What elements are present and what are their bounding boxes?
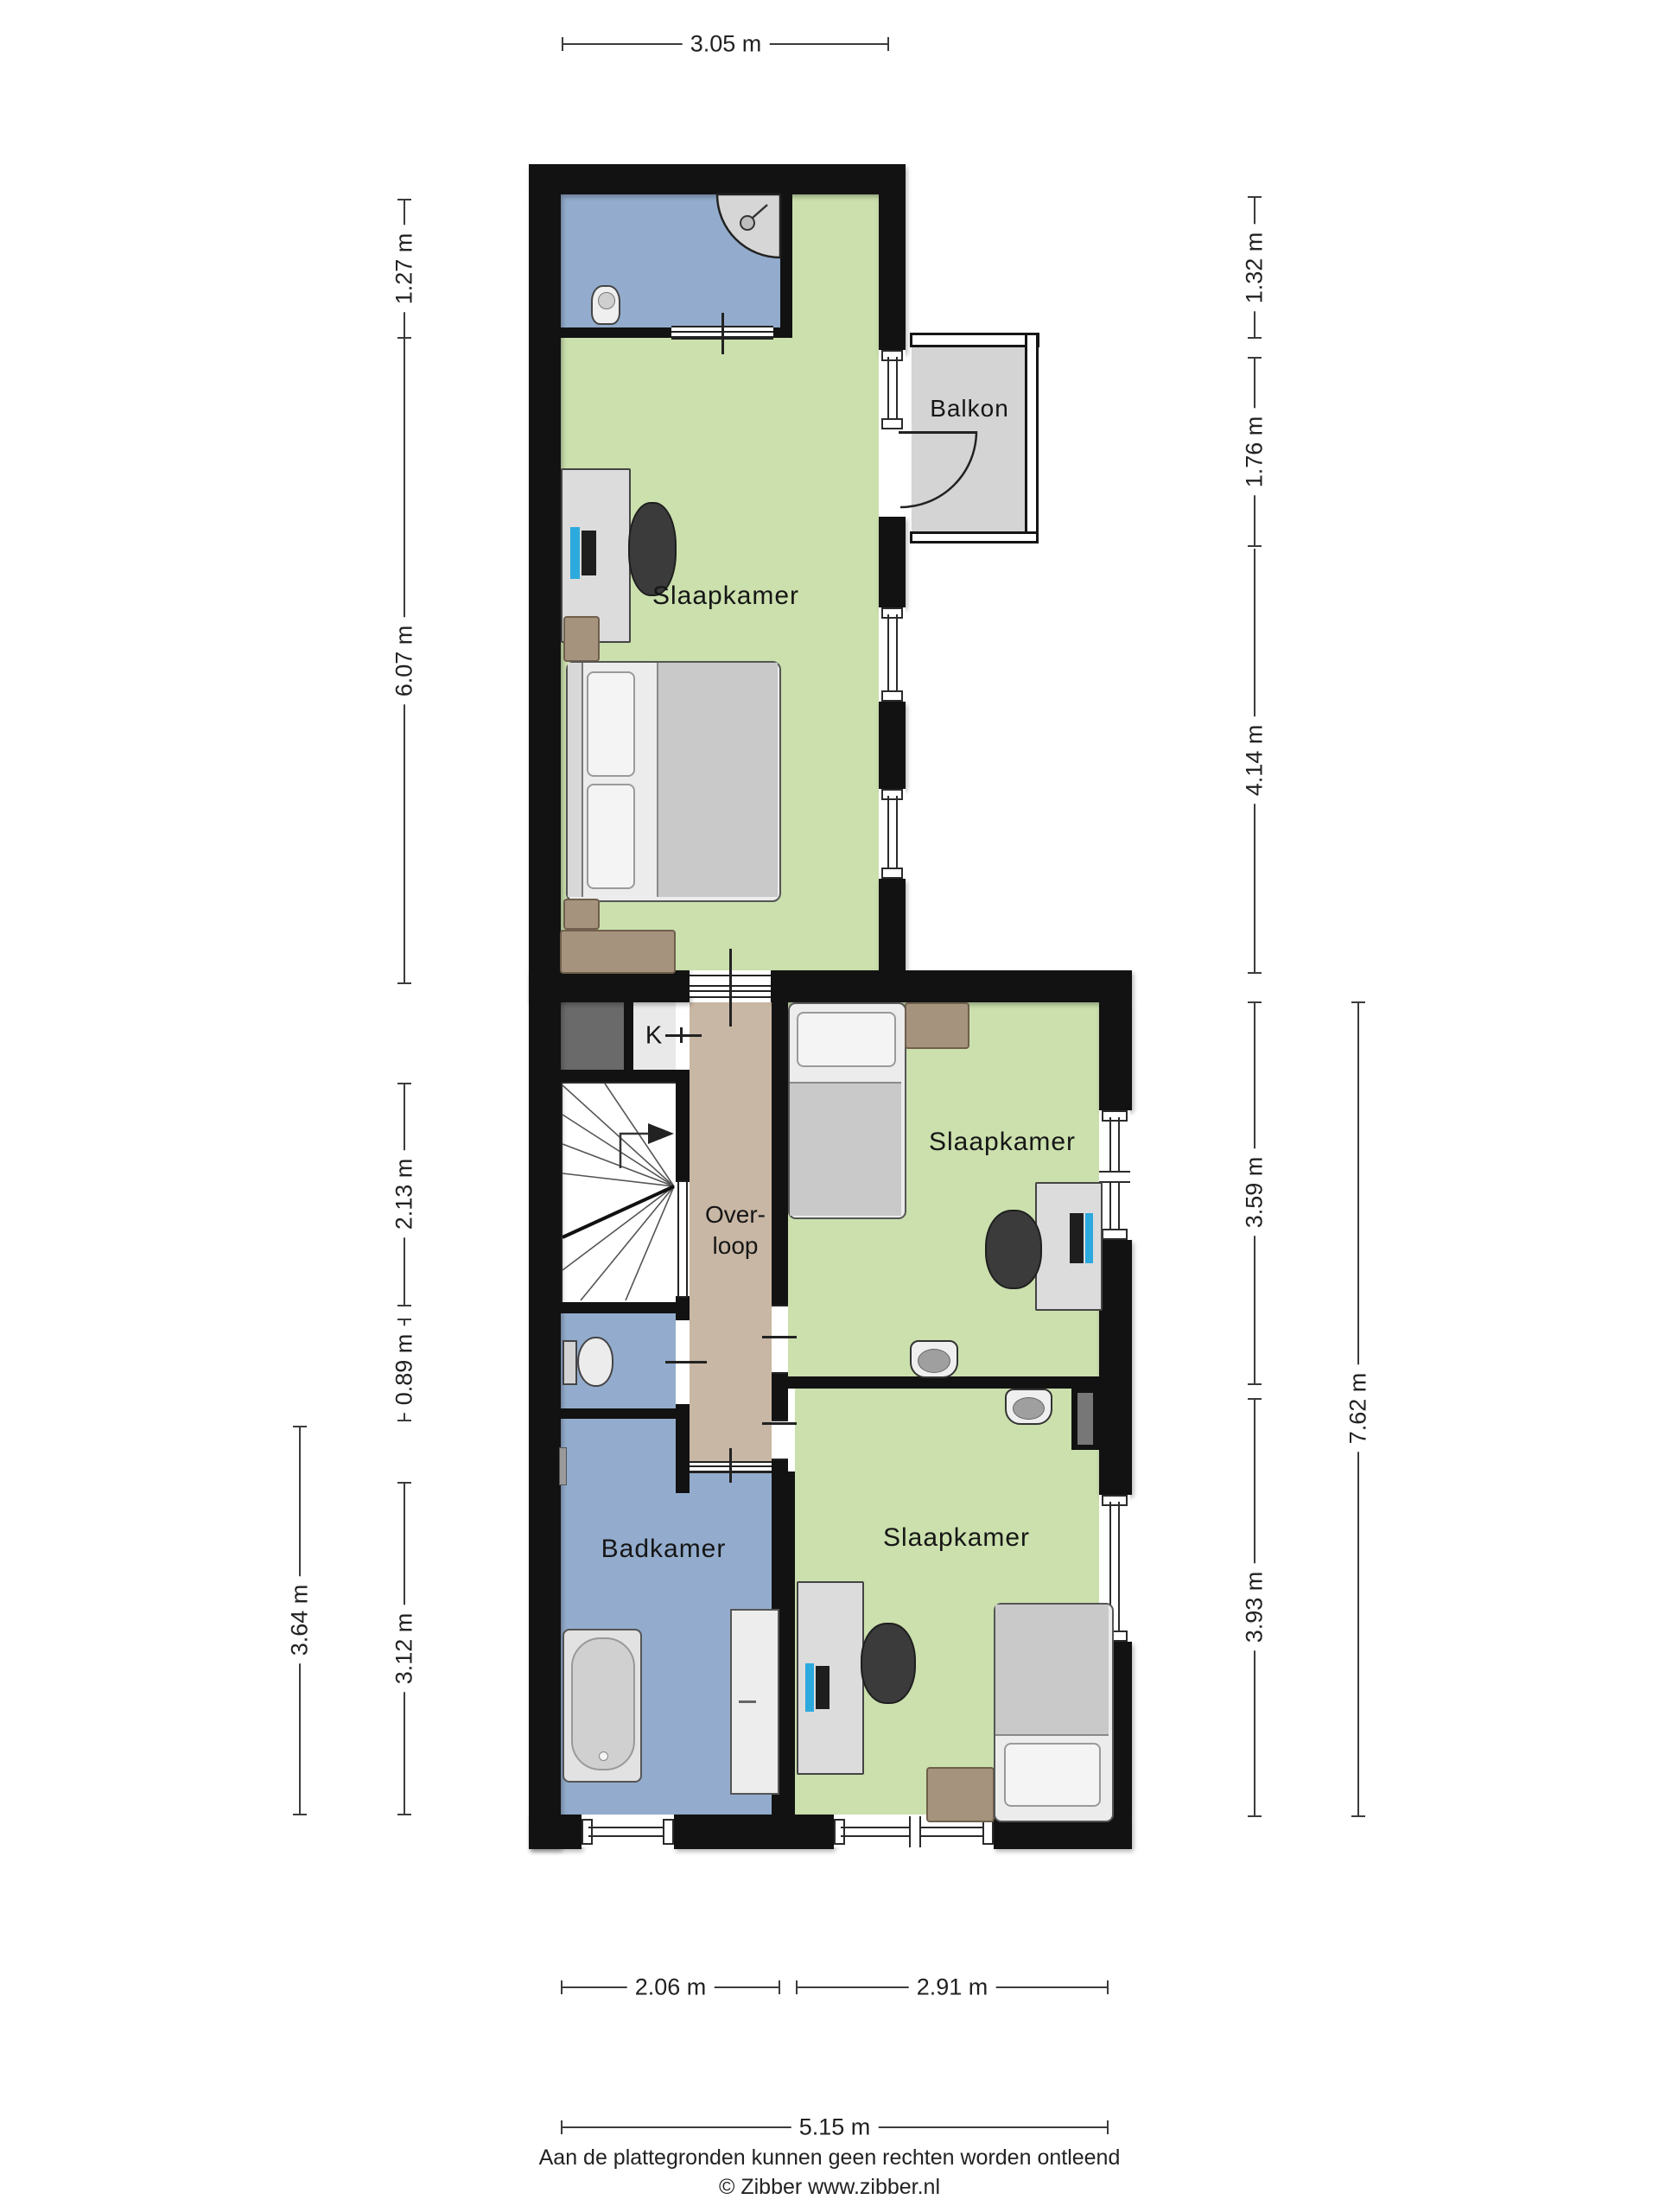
wall-segment [879, 702, 906, 789]
dim-label-right-bedroom: 4.14 m [1240, 717, 1270, 804]
dim-label-left-toilet: 0.89 m [390, 1326, 420, 1414]
door-tick [721, 313, 724, 354]
room-label-closet: K [645, 1022, 663, 1051]
towel-rail [559, 1447, 567, 1485]
washbasin-middle [910, 1340, 958, 1378]
pillow [587, 671, 635, 777]
dim-label-bottom-bedroom: 2.91 m [909, 1973, 996, 2003]
dim-label-right-total: 7.62 m [1344, 1365, 1374, 1452]
single-bed-middle [788, 1002, 906, 1219]
dim-label-left-bedroom: 6.07 m [390, 618, 420, 705]
room-closet-dark [561, 1002, 624, 1070]
wall-segment [1099, 1240, 1132, 1495]
wall-segment [561, 1302, 676, 1313]
pillow [797, 1012, 896, 1067]
wall-segment [529, 194, 561, 1002]
room-bedroom-top-strip [792, 194, 879, 338]
room-label-landing-line2: loop [705, 1230, 766, 1262]
wall-segment [879, 517, 906, 607]
disclaimer-line1: Aan de plattegronden kunnen geen rechten… [0, 2143, 1659, 2172]
balcony-window [879, 350, 906, 429]
closet-hatch-tick [680, 1027, 683, 1043]
washbasin-bowl [918, 1349, 950, 1373]
door-tick [762, 1336, 797, 1338]
wall-segment [1099, 1002, 1132, 1110]
duct-inset [1077, 1393, 1093, 1445]
wall-segment [879, 879, 906, 970]
room-label-balcony: Balkon [930, 395, 1009, 423]
closet-hatch-line [665, 1034, 702, 1037]
balcony-railing-bottom [910, 531, 1039, 543]
room-label-bathroom: Badkamer [601, 1535, 727, 1564]
double-bed [566, 661, 781, 902]
room-label-bedroom-bottom: Slaapkamer [883, 1523, 1030, 1553]
wall-segment [772, 1374, 788, 1420]
monitor-accent [1085, 1213, 1093, 1263]
door-tick [729, 949, 732, 1027]
bed-blanket [657, 663, 778, 897]
dim-label-left-bathroom: 3.12 m [390, 1605, 420, 1693]
stair-door-leaf [677, 1180, 688, 1298]
pillow [587, 784, 635, 889]
room-stairs [561, 1082, 679, 1306]
window-seam [1099, 1171, 1130, 1183]
disclaimer-line2: © Zibber www.zibber.nl [0, 2172, 1659, 2202]
window-bedroom-top-2 [879, 789, 906, 879]
wall-segment [529, 970, 690, 1002]
wall-segment [561, 1070, 690, 1082]
monitor-screen [582, 531, 596, 575]
balcony-door-opening [879, 429, 906, 517]
door-tick [729, 1448, 732, 1483]
dresser [560, 930, 676, 974]
pillow [1004, 1743, 1101, 1807]
washbasin-bowl [598, 292, 615, 309]
window-bedroom-middle [1099, 1110, 1130, 1240]
toilet-tank [563, 1340, 577, 1385]
wall-segment [529, 1002, 561, 1849]
monitor-screen [816, 1666, 829, 1709]
dim-label-right-bedroom-bottom: 3.93 m [1240, 1564, 1270, 1651]
window-bathroom-bottom [582, 1816, 674, 1847]
washbasin-bottom [1005, 1389, 1052, 1425]
window-seam [909, 1816, 921, 1847]
dim-label-right-bedroom-middle: 3.59 m [1240, 1149, 1270, 1236]
floor-plan-page: 3.05 m 1.27 m 6.07 m 2.13 m 0.89 m 3.12 … [0, 0, 1659, 2212]
bed-headboard [568, 663, 583, 897]
office-chair [861, 1623, 916, 1704]
door-bedroom-bottom [772, 1420, 788, 1460]
office-chair [985, 1210, 1042, 1289]
cabinet-handle [739, 1700, 756, 1703]
monitor-accent [805, 1663, 814, 1712]
wall-segment [788, 1376, 1099, 1389]
dim-label-top-total: 3.05 m [683, 29, 770, 60]
bed-blanket [995, 1605, 1109, 1736]
dim-label-bottom-bathroom: 2.06 m [627, 1973, 715, 2003]
wall-segment [561, 1408, 690, 1419]
door-tick [762, 1422, 797, 1425]
wall-segment [674, 1815, 834, 1849]
wall-segment [771, 970, 1132, 1002]
balcony-railing-right [1025, 333, 1039, 543]
dim-label-right-top: 1.32 m [1240, 225, 1270, 312]
wall-segment [879, 194, 906, 353]
wall-segment [561, 327, 671, 338]
bathroom-cabinet [730, 1609, 779, 1795]
wall-segment [676, 1296, 690, 1320]
room-label-bedroom-top: Slaapkamer [652, 582, 799, 611]
bathtub-drain [599, 1751, 608, 1761]
room-label-bedroom-middle: Slaapkamer [929, 1128, 1076, 1157]
washbasin-shower-room [591, 285, 620, 325]
dim-label-left-outer: 3.64 m [285, 1577, 315, 1664]
room-label-landing: Over- loop [705, 1199, 766, 1262]
monitor-accent [570, 527, 580, 579]
bathtub [563, 1629, 642, 1783]
wall-segment [529, 164, 906, 194]
wall-segment [624, 1002, 633, 1070]
door-bedroom-middle [772, 1305, 788, 1374]
nightstand [563, 899, 600, 930]
nightstand [926, 1767, 995, 1822]
bathtub-basin [571, 1637, 635, 1770]
dim-label-left-stairs: 2.13 m [390, 1151, 420, 1238]
wall-segment [676, 1082, 690, 1182]
nightstand [563, 616, 600, 662]
bed-blanket [790, 1082, 901, 1216]
single-bed-bottom [994, 1603, 1114, 1822]
balcony-railing-top [910, 333, 1039, 347]
wall-segment [780, 194, 792, 338]
window-bedroom-top-1 [879, 607, 906, 702]
wall-segment [773, 327, 780, 338]
toilet-bowl [577, 1337, 613, 1387]
wall-segment [772, 1460, 788, 1471]
washbasin-bowl [1013, 1397, 1045, 1420]
balcony-slab [912, 347, 1027, 531]
monitor-screen [1070, 1213, 1084, 1263]
wall-segment [772, 1002, 788, 1305]
wall-segment [529, 1815, 582, 1849]
dim-label-bottom-total: 5.15 m [791, 2113, 879, 2143]
room-label-landing-line1: Over- [705, 1199, 766, 1230]
door-tick [665, 1361, 707, 1363]
dim-label-left-shower: 1.27 m [390, 226, 420, 313]
balcony-door-leaf [899, 431, 976, 434]
dim-label-right-balcony: 1.76 m [1240, 409, 1270, 496]
nightstand [905, 1002, 969, 1049]
disclaimer: Aan de plattegronden kunnen geen rechten… [0, 2143, 1659, 2202]
